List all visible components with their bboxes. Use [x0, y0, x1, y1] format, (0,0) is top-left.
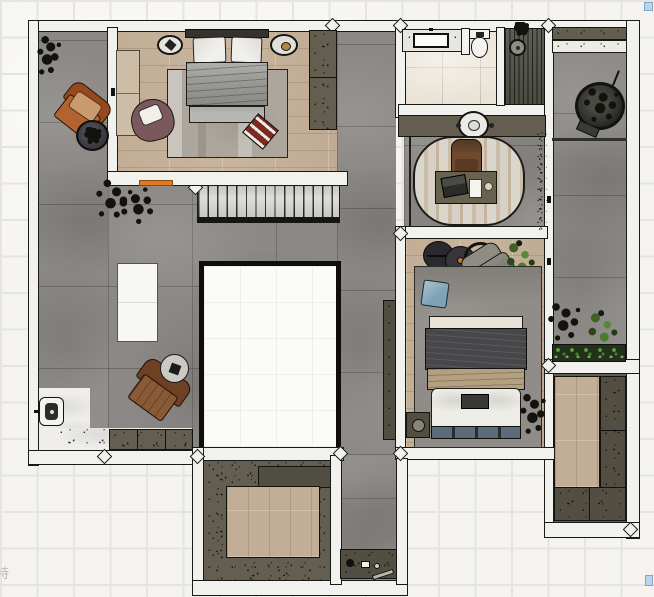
closet-items-left [208, 516, 224, 558]
shower-head-center [516, 46, 520, 50]
storage-cabinet-bottom [554, 487, 626, 521]
closet-items-top [208, 464, 252, 484]
storage-cabinet-column [600, 376, 626, 488]
bar-counter [552, 27, 627, 53]
basin-handle-left [456, 123, 461, 128]
display-basin-inner [468, 120, 480, 131]
side-desk-seam [117, 93, 139, 94]
bedside-plant [518, 388, 548, 442]
staircase-edge [197, 217, 340, 223]
basin-handle-right [489, 123, 494, 128]
wall-closet-top [192, 447, 344, 461]
round-table-plant [84, 127, 102, 145]
bed2-center-item [461, 394, 489, 409]
shelf-item-a [361, 561, 370, 568]
island-seam [118, 302, 157, 303]
shelf-item-c [346, 559, 354, 567]
wall-corridor-right [396, 458, 408, 585]
display-basin [458, 111, 489, 139]
shower-head [509, 39, 526, 56]
nightstand-left [157, 35, 183, 55]
planter-dark [544, 298, 584, 348]
shoe-cabinet-seam1 [137, 430, 138, 449]
door-tick-1 [111, 88, 115, 96]
corridor-bookshelf [383, 300, 396, 440]
wardrobe1-seam [310, 77, 336, 78]
wall-closet-bottom [192, 580, 408, 596]
glass-partition [409, 137, 411, 227]
floorplan-viewport[interactable]: 特 [0, 0, 654, 597]
bar-counter-top [552, 27, 627, 40]
door-tick-2 [547, 196, 551, 203]
bathroom-plant [514, 22, 529, 36]
faucet [429, 28, 433, 31]
wall-closet-left [192, 447, 204, 595]
nightstand-right [270, 34, 298, 56]
intercom-mount [34, 410, 40, 413]
study-desk [435, 171, 497, 204]
wall-bedroom2-left [395, 226, 406, 460]
bed2-headboard-storage [431, 426, 521, 439]
round-side-table-light [160, 354, 189, 383]
closet-floor [226, 486, 320, 558]
wardrobe-1 [309, 30, 337, 130]
storage-divider-1 [600, 430, 626, 431]
terrace-divider [552, 138, 627, 141]
bed2-duvet [425, 328, 527, 370]
vanity-items-left [404, 32, 413, 49]
toilet-bowl [471, 37, 488, 58]
bed1-duvet [186, 62, 268, 106]
handle-top-right[interactable] [644, 2, 653, 11]
storage-floor [554, 376, 600, 488]
laptop [440, 174, 468, 198]
bed1-pillow-left [193, 36, 227, 63]
double-bed-1 [185, 29, 269, 124]
shrub-bed [552, 344, 626, 362]
double-bed-2 [425, 314, 527, 442]
storage-divider-2 [589, 487, 590, 521]
scattered-shoes [56, 427, 106, 448]
nightstand-left-item [164, 39, 176, 51]
wall-intercom [39, 397, 64, 426]
closet-items-bottom [240, 560, 312, 577]
round-side-table-dark [76, 120, 109, 151]
wall-bottom-left [28, 450, 202, 465]
nightstand-2-item [412, 419, 425, 432]
wall-bedroom2-bottom [395, 447, 555, 460]
stairwell-void [199, 261, 341, 453]
vanity-counter [402, 29, 462, 52]
notepad [469, 179, 482, 198]
watermark-text: 特 [0, 563, 9, 582]
vanity-sink [413, 33, 449, 48]
handle-bottom-right[interactable] [645, 575, 653, 586]
side-table-item [169, 363, 182, 376]
bar-counter-items [552, 40, 627, 53]
closet-shelf-step [258, 466, 332, 488]
shower-floor [504, 28, 545, 105]
staircase [197, 184, 340, 218]
door-tick-3 [547, 258, 551, 265]
intercom-dot [50, 410, 54, 414]
shelf-item-b [374, 563, 380, 569]
wall-mid-right [544, 26, 554, 538]
nightstand-2 [406, 412, 430, 438]
hanging-chair [571, 78, 629, 142]
nightstand-right-item [281, 42, 291, 51]
hanging-chair-texture [579, 84, 623, 128]
white-island-table [117, 263, 158, 342]
cup [484, 182, 493, 191]
shoe-cabinet-seam2 [165, 430, 166, 449]
wall-planter-strip [536, 131, 547, 231]
bed2-throw [427, 368, 525, 390]
vanity-items-right [450, 32, 461, 50]
wall-left [28, 20, 39, 466]
blue-pillow [420, 279, 449, 308]
shoe-cabinet [109, 429, 193, 450]
bed1-pillow-right [231, 36, 263, 63]
